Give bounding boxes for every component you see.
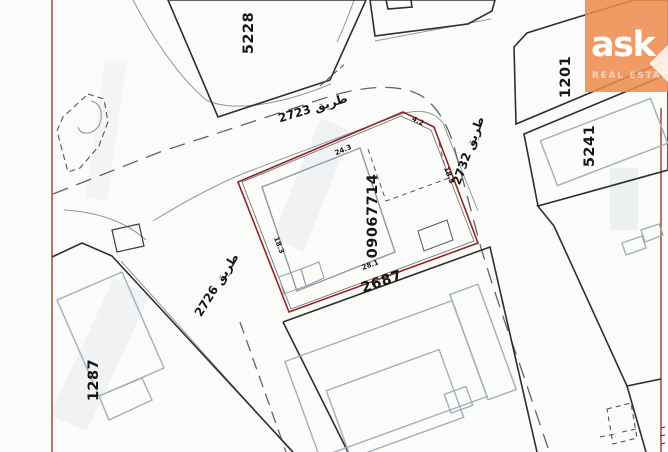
target-plot-id-label: 09067714 <box>365 174 381 259</box>
dashes-bottom-right <box>600 429 637 437</box>
road-label-2726: طريق 2726 <box>192 251 242 319</box>
dimension-bottom: 28.1 <box>361 258 380 271</box>
plot-label-1287: 1287 <box>86 359 102 401</box>
road-label-2723: طريق 2723 <box>277 91 350 125</box>
building-5241 <box>540 98 667 185</box>
plot-label-5228: 5228 <box>241 12 257 54</box>
ask-logo: ask REAL ESTATE <box>585 0 668 92</box>
parcel-top-center-notch <box>386 0 412 9</box>
target-plot-outline <box>238 112 478 312</box>
building-small-right-2 <box>641 224 663 242</box>
site-plan-map: 5228 1201 5241 1287 09067714 2687 طريق 2… <box>0 0 668 452</box>
street-number-2687: 2687 <box>359 268 404 297</box>
plot-label-1201: 1201 <box>558 56 574 98</box>
target-building-step-2 <box>301 262 324 286</box>
plot-label-5241: 5241 <box>582 125 598 167</box>
building-2687-small <box>444 386 472 413</box>
building-small-right-1 <box>622 236 646 255</box>
centerline-2726 <box>240 322 286 452</box>
parcel-right-lower-edge <box>627 386 646 452</box>
dashed-structure-right <box>607 403 637 444</box>
building-2687-main <box>285 301 487 452</box>
target-building-annex <box>418 220 453 251</box>
building-2687-strip <box>450 284 516 400</box>
smudge <box>85 59 126 201</box>
target-plot <box>238 112 478 312</box>
logo-brand-text: ask <box>591 28 654 63</box>
curb-top-gap <box>337 0 354 42</box>
dashed-details <box>57 62 637 444</box>
smudge <box>610 168 638 230</box>
cadastral-site-plan: 5228 1201 5241 1287 09067714 2687 طريق 2… <box>0 0 668 452</box>
scan-smudges <box>50 59 638 431</box>
parcel-2687-top-boundary <box>283 247 537 452</box>
logo-tagline: REAL ESTATE <box>592 71 668 81</box>
curb-top-center-inner <box>375 19 491 41</box>
building-2687-inner <box>326 350 463 452</box>
dimension-corner: 4.2 <box>411 115 426 128</box>
substation-box-1287 <box>112 224 144 252</box>
